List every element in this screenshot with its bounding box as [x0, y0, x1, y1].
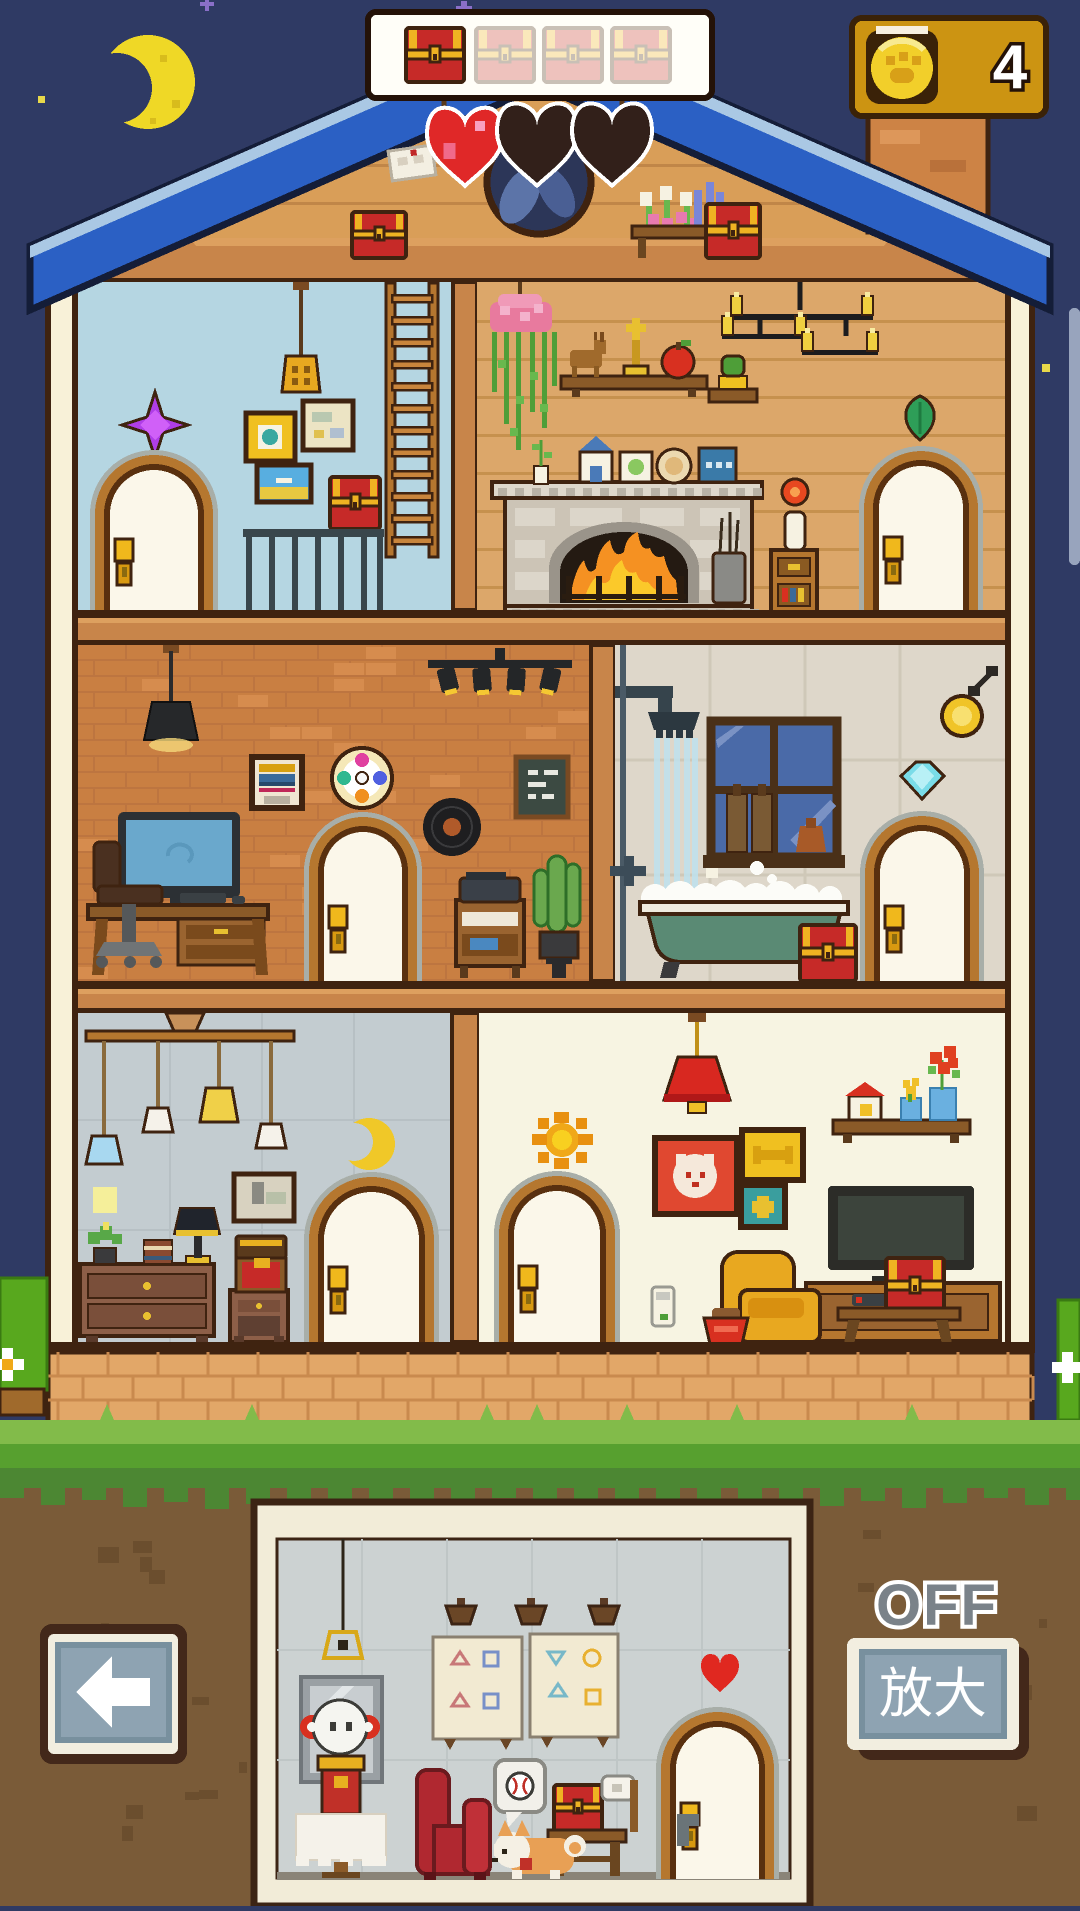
- svg-text:放大: 放大: [879, 1664, 987, 1724]
- svg-text:4: 4: [993, 33, 1028, 102]
- svg-text:OFF: OFF: [876, 1573, 998, 1638]
